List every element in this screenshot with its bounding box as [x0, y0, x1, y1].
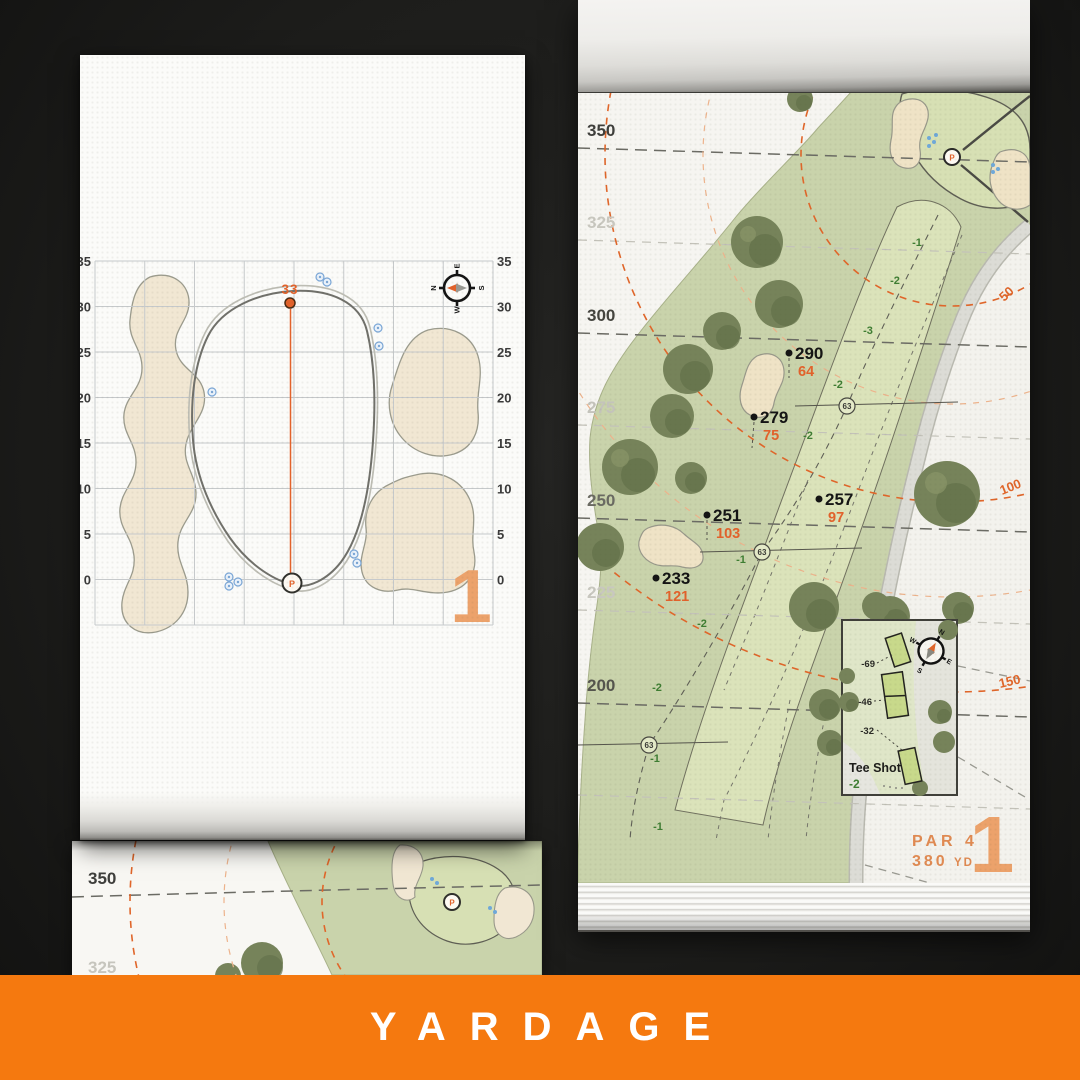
- page-stack-edges: [578, 883, 1030, 932]
- svg-text:225: 225: [587, 583, 615, 602]
- hole-map-page: 63 63 63 P 350 325 300 275 250 225: [578, 0, 1030, 930]
- svg-text:5: 5: [497, 527, 504, 542]
- pin-label: P: [289, 579, 295, 589]
- svg-text:97: 97: [828, 510, 844, 526]
- svg-text:75: 75: [763, 428, 779, 444]
- svg-text:0: 0: [84, 573, 91, 588]
- hole-page-number: 1: [970, 800, 1015, 883]
- putting-green-outline: [189, 286, 378, 591]
- green-map-page: 35 30 25 20 15 10 5 0 35 30 25 20 15 10 …: [80, 55, 525, 840]
- svg-text:15: 15: [497, 436, 511, 451]
- svg-text:380: 380: [912, 853, 948, 870]
- svg-text:35: 35: [497, 254, 511, 269]
- tee-shot-elevation: -2: [849, 777, 860, 791]
- svg-text:300: 300: [587, 306, 615, 325]
- svg-text:275: 275: [587, 398, 615, 417]
- svg-text:63: 63: [843, 402, 852, 411]
- svg-text:25: 25: [80, 345, 91, 360]
- svg-text:-2: -2: [803, 430, 813, 442]
- svg-text:250: 250: [587, 491, 615, 510]
- svg-text:S: S: [477, 285, 486, 290]
- par-label: PAR 4: [912, 833, 978, 850]
- svg-text:251: 251: [713, 506, 741, 525]
- svg-text:103: 103: [716, 526, 740, 542]
- svg-text:279: 279: [760, 408, 788, 427]
- svg-text:-2: -2: [833, 379, 843, 391]
- svg-text:-1: -1: [653, 821, 663, 833]
- svg-text:-2: -2: [652, 682, 662, 694]
- svg-text:5: 5: [84, 527, 91, 542]
- banner-title: YARDAGE: [346, 1005, 734, 1050]
- svg-text:-2: -2: [697, 618, 707, 630]
- under-page-hole-map: P 350 325: [72, 841, 542, 975]
- svg-text:233: 233: [662, 569, 690, 588]
- svg-text:200: 200: [587, 676, 615, 695]
- svg-text:-32: -32: [860, 726, 874, 737]
- svg-text:20: 20: [80, 391, 91, 406]
- svg-text:-46: -46: [858, 697, 872, 708]
- tee-shot-inset: -69 -46 -32 Tee Shot -2 N E: [839, 618, 964, 796]
- under-pin-label: P: [449, 899, 455, 908]
- green-page-number: 1: [450, 554, 492, 638]
- svg-text:E: E: [453, 263, 462, 268]
- depth-label: 33: [281, 282, 298, 297]
- svg-text:25: 25: [497, 345, 511, 360]
- svg-text:10: 10: [80, 482, 91, 497]
- hole-map: 63 63 63 P 350 325 300 275 250 225: [578, 92, 1030, 883]
- svg-text:15: 15: [80, 436, 91, 451]
- svg-text:121: 121: [665, 589, 689, 605]
- under-tick-325: 325: [88, 958, 116, 975]
- page-curl-top: [578, 0, 1030, 93]
- svg-text:-3: -3: [863, 325, 873, 337]
- hole-pin-label: P: [949, 154, 955, 163]
- page-curl-bottom: [80, 792, 525, 840]
- svg-text:10: 10: [497, 482, 511, 497]
- svg-text:30: 30: [497, 300, 511, 315]
- svg-text:257: 257: [825, 490, 853, 509]
- svg-text:-1: -1: [736, 554, 746, 566]
- svg-text:-1: -1: [912, 237, 922, 249]
- svg-text:63: 63: [645, 741, 654, 750]
- svg-text:20: 20: [497, 391, 511, 406]
- under-page-map: P 350 325: [72, 841, 542, 975]
- svg-text:0: 0: [497, 573, 504, 588]
- svg-text:-69: -69: [861, 659, 875, 670]
- svg-text:30: 30: [80, 300, 91, 315]
- svg-text:W: W: [453, 306, 462, 314]
- svg-text:-2: -2: [890, 275, 900, 287]
- svg-text:325: 325: [587, 213, 615, 232]
- svg-text:35: 35: [80, 254, 91, 269]
- green-map: 35 30 25 20 15 10 5 0 35 30 25 20 15 10 …: [80, 55, 525, 840]
- svg-text:63: 63: [758, 548, 767, 557]
- svg-text:290: 290: [795, 344, 823, 363]
- under-tick-350: 350: [88, 869, 116, 888]
- svg-text:64: 64: [798, 364, 814, 380]
- depth-dot-icon: [285, 298, 295, 308]
- svg-text:N: N: [429, 285, 438, 290]
- tee-shot-title: Tee Shot: [849, 761, 902, 775]
- yardage-book-mockup: P 350 325 35 30 25 20 15 10 5: [0, 0, 1080, 1080]
- yardage-banner: YARDAGE: [0, 975, 1080, 1080]
- svg-text:350: 350: [587, 121, 615, 140]
- svg-text:-1: -1: [650, 753, 660, 765]
